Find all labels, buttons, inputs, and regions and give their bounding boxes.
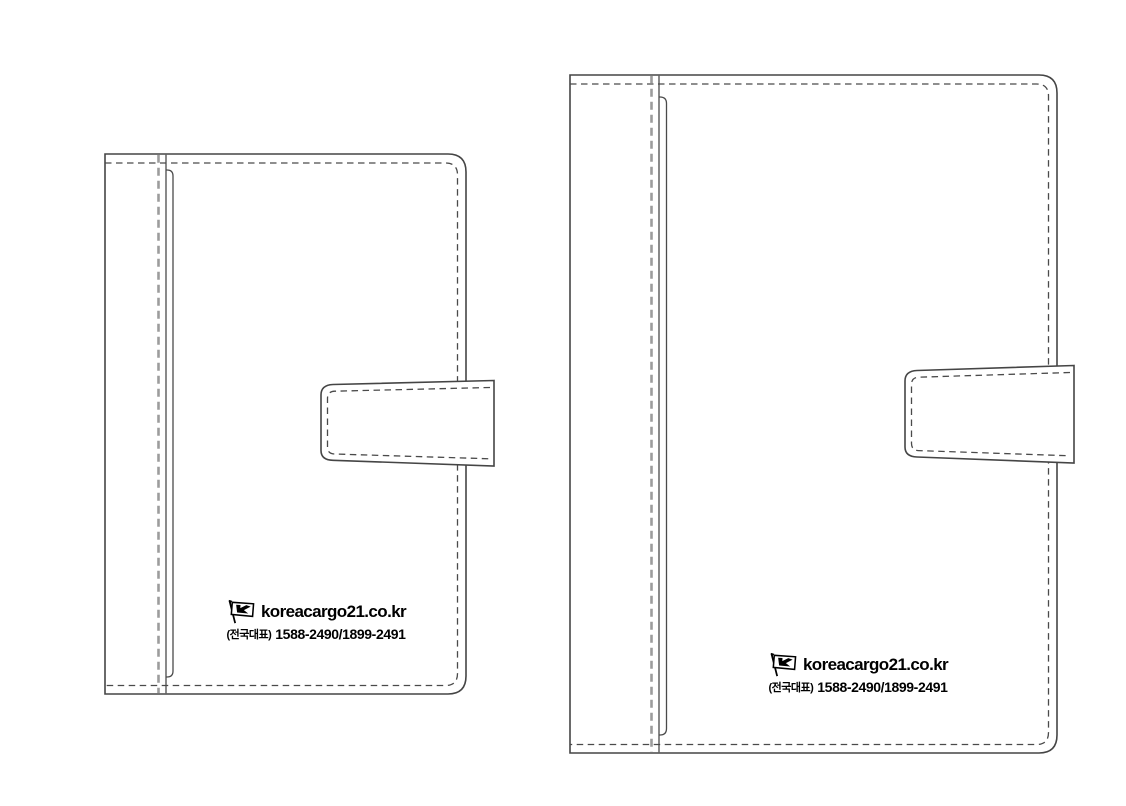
brand-row: koreacargo21.co.kr [226, 599, 406, 625]
phone-row: (전국대표) 1588-2490/1899-2491 [768, 679, 947, 695]
korea-cargo-flag-icon [226, 599, 255, 625]
phone-label: (전국대표) [226, 626, 271, 642]
brand-domain-text: koreacargo21.co.kr [803, 655, 948, 675]
brand-domain-text: koreacargo21.co.kr [261, 602, 406, 622]
brand-row: koreacargo21.co.kr [768, 652, 948, 678]
phone-numbers: 1588-2490/1899-2491 [275, 626, 405, 642]
brand-mark-large-cover: koreacargo21.co.kr (전국대표) 1588-2490/1899… [758, 652, 958, 695]
korea-cargo-flag-icon [768, 652, 797, 678]
drawing-canvas: koreacargo21.co.kr (전국대표) 1588-2490/1899… [0, 0, 1126, 806]
brand-mark-small-cover: koreacargo21.co.kr (전국대표) 1588-2490/1899… [216, 599, 416, 642]
small-cover-strap [321, 381, 494, 467]
phone-numbers: 1588-2490/1899-2491 [817, 679, 947, 695]
phone-label: (전국대표) [768, 679, 813, 695]
large-cover-strap [905, 366, 1074, 464]
phone-row: (전국대표) 1588-2490/1899-2491 [226, 626, 405, 642]
